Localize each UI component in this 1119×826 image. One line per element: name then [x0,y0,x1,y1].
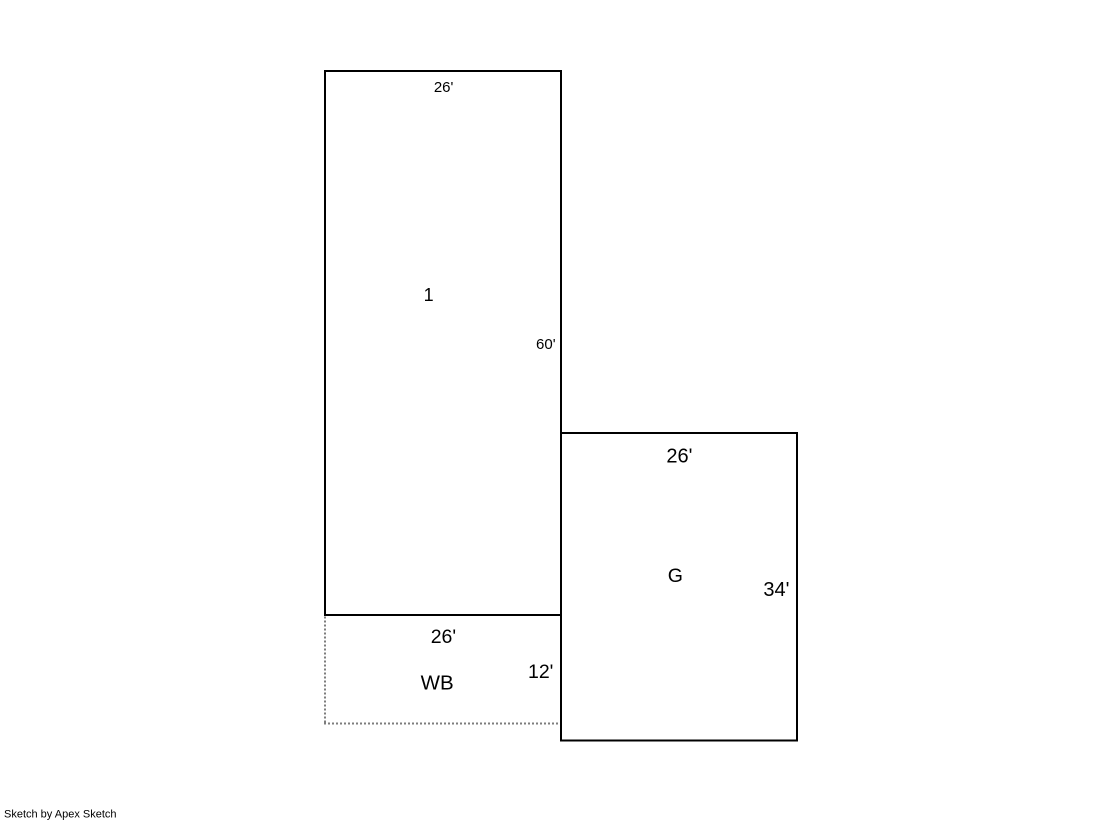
svg-text:WB: WB [421,672,454,695]
svg-text:Sketch by Apex Sketch: Sketch by Apex Sketch [4,809,117,821]
svg-text:1: 1 [424,285,434,305]
svg-text:26': 26' [666,446,692,468]
svg-text:60': 60' [536,336,556,353]
svg-text:34': 34' [763,579,789,601]
svg-text:12': 12' [528,661,553,683]
svg-text:26': 26' [431,626,456,648]
svg-text:26': 26' [434,79,454,96]
svg-text:G: G [668,565,683,587]
